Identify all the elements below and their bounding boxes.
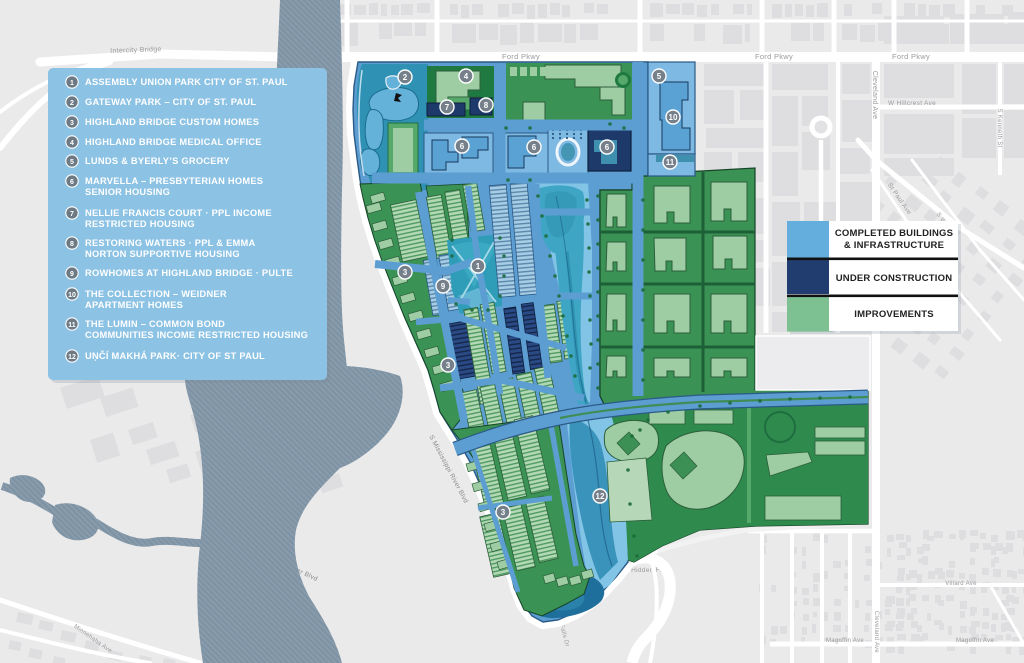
svg-text:3: 3: [70, 120, 74, 127]
svg-text:Ford Pkwy: Ford Pkwy: [892, 52, 930, 61]
svg-text:Villard Ave: Villard Ave: [945, 581, 977, 587]
svg-text:12: 12: [68, 354, 76, 361]
svg-text:4: 4: [70, 140, 74, 147]
svg-text:7: 7: [70, 211, 74, 218]
svg-text:COMMUNITIES INCOME RESTRICTED: COMMUNITIES INCOME RESTRICTED HOUSING: [85, 330, 308, 340]
svg-text:Ford Pkwy: Ford Pkwy: [755, 52, 793, 61]
svg-text:3: 3: [501, 508, 506, 517]
svg-text:RESTRICTED HOUSING: RESTRICTED HOUSING: [85, 219, 195, 229]
svg-text:UŅČÍ MAKHÁ PARK· CITY OF ST PA: UŅČÍ MAKHÁ PARK· CITY OF ST PAUL: [85, 350, 265, 361]
svg-text:8: 8: [70, 241, 74, 248]
svg-text:Cleveland Ave: Cleveland Ave: [871, 71, 878, 120]
svg-text:6: 6: [605, 143, 610, 152]
svg-text:1: 1: [476, 262, 481, 271]
svg-text:1: 1: [70, 80, 74, 87]
svg-text:THE COLLECTION – WEIDNER: THE COLLECTION – WEIDNER: [85, 289, 227, 299]
svg-text:2: 2: [70, 100, 74, 107]
svg-text:HIGHLAND BRIDGE CUSTOM HOMES: HIGHLAND BRIDGE CUSTOM HOMES: [85, 117, 259, 127]
svg-text:9: 9: [70, 271, 74, 278]
svg-text:10: 10: [68, 292, 76, 299]
svg-text:11: 11: [68, 322, 76, 329]
svg-text:6: 6: [460, 142, 465, 151]
svg-text:3: 3: [403, 268, 408, 277]
svg-text:8: 8: [484, 101, 489, 110]
svg-text:RESTORING WATERS · PPL & EMMA: RESTORING WATERS · PPL & EMMA: [85, 238, 256, 248]
svg-text:6: 6: [70, 179, 74, 186]
svg-text:GATEWAY PARK – CITY OF ST. PAU: GATEWAY PARK – CITY OF ST. PAUL: [85, 97, 256, 107]
svg-text:W Hillcrest Ave: W Hillcrest Ave: [888, 100, 936, 107]
svg-text:10: 10: [669, 113, 678, 122]
svg-text:5: 5: [70, 159, 74, 166]
svg-text:11: 11: [666, 158, 675, 167]
svg-text:ROWHOMES AT HIGHLAND BRIDGE ·: ROWHOMES AT HIGHLAND BRIDGE · PULTE: [85, 268, 293, 278]
svg-text:3: 3: [446, 361, 451, 370]
svg-text:THE LUMIN – COMMON BOND: THE LUMIN – COMMON BOND: [85, 319, 225, 329]
svg-text:4: 4: [464, 72, 469, 81]
svg-text:APARTMENT HOMES: APARTMENT HOMES: [85, 300, 183, 310]
svg-text:UNDER CONSTRUCTION: UNDER CONSTRUCTION: [836, 273, 953, 284]
svg-text:Ford Pkwy: Ford Pkwy: [502, 52, 540, 61]
svg-text:6: 6: [532, 143, 537, 152]
svg-text:MARVELLA – PRESBYTERIAN HOMES: MARVELLA – PRESBYTERIAN HOMES: [85, 176, 263, 186]
svg-text:Magoffin Ave: Magoffin Ave: [956, 638, 994, 644]
svg-text:HIGHLAND BRIDGE MEDICAL OFFICE: HIGHLAND BRIDGE MEDICAL OFFICE: [85, 137, 262, 147]
svg-text:9: 9: [441, 282, 446, 291]
svg-text:ASSEMBLY UNION PARK CITY OF ST: ASSEMBLY UNION PARK CITY OF ST. PAUL: [85, 77, 288, 87]
svg-text:12: 12: [596, 492, 605, 501]
svg-text:LUNDS & BYERLY’S GROCERY: LUNDS & BYERLY’S GROCERY: [85, 156, 230, 166]
svg-text:Magoffin Ave: Magoffin Ave: [826, 638, 864, 644]
svg-text:2: 2: [403, 73, 408, 82]
svg-text:Cleveland Ave: Cleveland Ave: [873, 611, 879, 654]
svg-text:COMPLETED BUILDINGS: COMPLETED BUILDINGS: [835, 228, 953, 239]
svg-text:IMPROVEMENTS: IMPROVEMENTS: [854, 309, 933, 320]
svg-text:NORTON SUPPORTIVE HOUSING: NORTON SUPPORTIVE HOUSING: [85, 249, 240, 259]
svg-text:5: 5: [657, 72, 662, 81]
svg-text:7: 7: [445, 103, 450, 112]
svg-text:SENIOR HOUSING: SENIOR HOUSING: [85, 187, 170, 197]
svg-text:S Kenneth St: S Kenneth St: [996, 109, 1002, 148]
svg-text:NELLIE FRANCIS COURT · PPL INC: NELLIE FRANCIS COURT · PPL INCOME: [85, 208, 272, 218]
svg-text:& INFRASTRUCTURE: & INFRASTRUCTURE: [844, 240, 944, 251]
